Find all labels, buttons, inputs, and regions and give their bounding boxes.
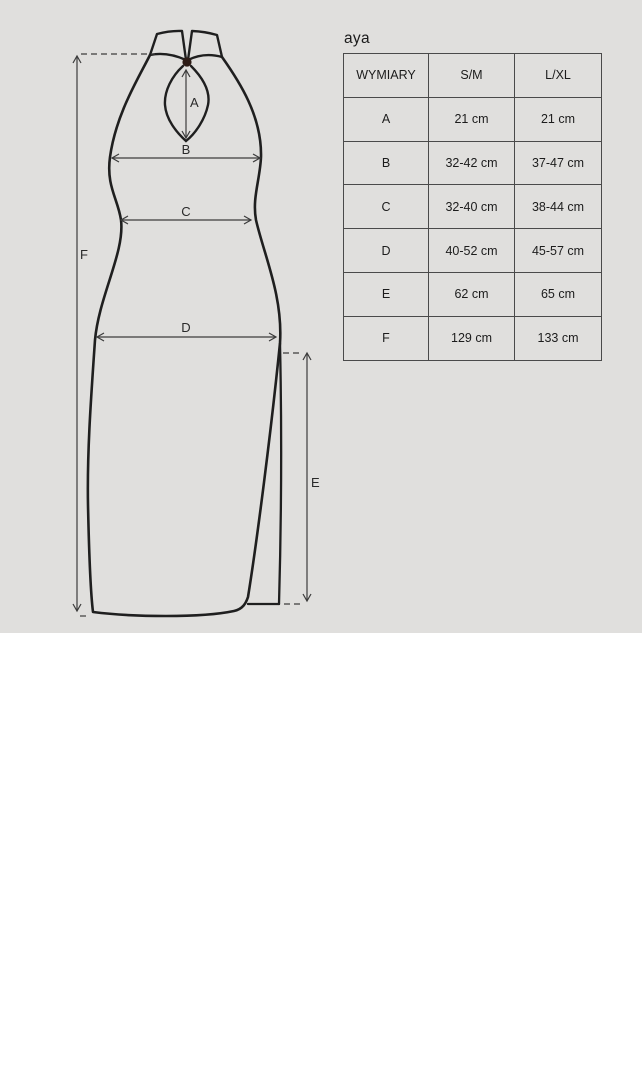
row-dim: E [344,272,429,316]
keyhole-opening [165,66,209,141]
size-table-header-row: WYMIARY S/M L/XL [344,54,602,98]
row-sm: 32-40 cm [429,185,515,229]
measure-label-a: A [190,95,199,110]
row-sm: 62 cm [429,272,515,316]
header-lxl: L/XL [515,54,602,98]
table-row: D 40-52 cm 45-57 cm [344,229,602,273]
size-guide-page: A B C D E F aya WYMIARY S/M L/XL A 21 cm… [0,0,642,1080]
row-lxl: 38-44 cm [515,185,602,229]
row-lxl: 45-57 cm [515,229,602,273]
table-row: F 129 cm 133 cm [344,316,602,360]
table-row: E 62 cm 65 cm [344,272,602,316]
collar-left-panel [150,31,186,60]
header-sm: S/M [429,54,515,98]
product-name: aya [344,30,370,48]
size-chart-panel: A B C D E F aya WYMIARY S/M L/XL A 21 cm… [0,0,642,633]
row-sm: 21 cm [429,97,515,141]
measure-label-b: B [182,142,191,157]
measure-line-e [303,353,311,601]
row-lxl: 21 cm [515,97,602,141]
slit-back-panel-edge [279,343,281,604]
row-dim: B [344,141,429,185]
table-row: A 21 cm 21 cm [344,97,602,141]
measure-label-f: F [80,247,88,262]
measure-label-d: D [181,320,190,335]
table-row: C 32-40 cm 38-44 cm [344,185,602,229]
measure-line-f [73,56,81,611]
row-dim: F [344,316,429,360]
measure-label-c: C [181,204,190,219]
measure-label-e: E [311,475,320,490]
row-sm: 32-42 cm [429,141,515,185]
collar-button-icon [182,57,191,66]
row-lxl: 37-47 cm [515,141,602,185]
row-dim: C [344,185,429,229]
header-wymiary: WYMIARY [344,54,429,98]
row-lxl: 133 cm [515,316,602,360]
empty-white-area [0,633,642,1080]
row-sm: 129 cm [429,316,515,360]
row-sm: 40-52 cm [429,229,515,273]
row-lxl: 65 cm [515,272,602,316]
row-dim: D [344,229,429,273]
row-dim: A [344,97,429,141]
table-row: B 32-42 cm 37-47 cm [344,141,602,185]
measure-line-a [182,70,190,138]
size-table: WYMIARY S/M L/XL A 21 cm 21 cm B 32-42 c… [343,53,602,361]
collar-right-panel [188,31,222,60]
measurement-lines [73,54,311,616]
